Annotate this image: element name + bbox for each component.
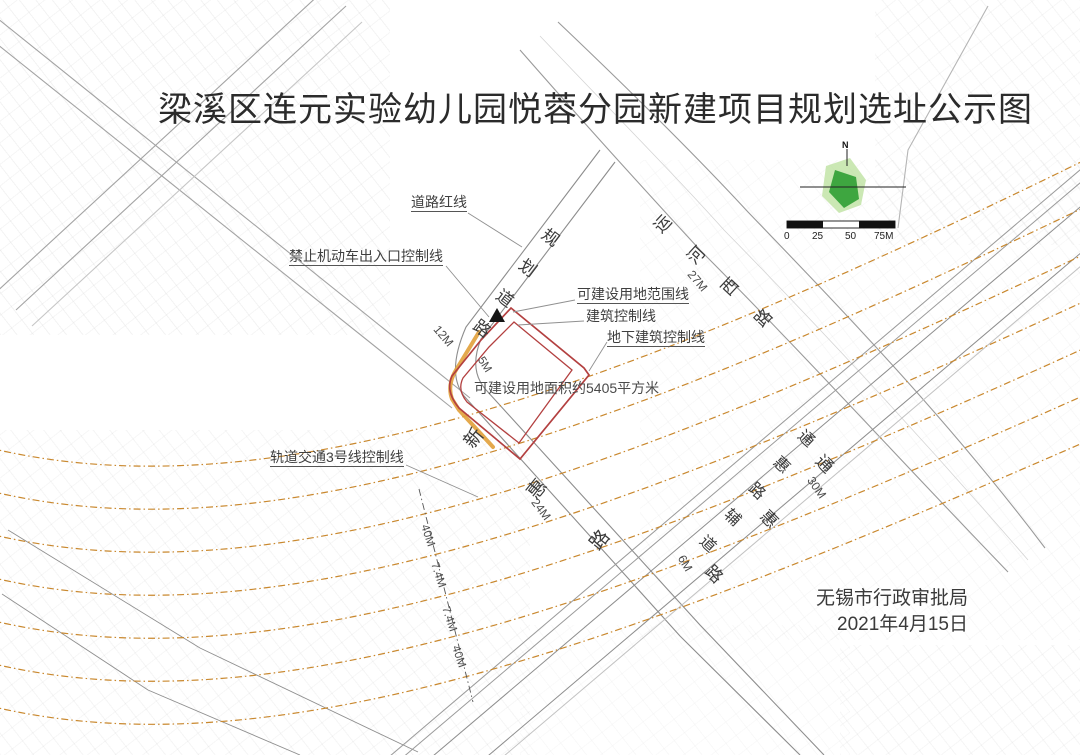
north-label: N [842, 140, 849, 150]
label-metro-line3-control: 轨道交通3号线控制线 [270, 449, 404, 467]
label-no-motor-entrance: 禁止机动车出入口控制线 [289, 248, 443, 266]
label-road-red-line: 道路红线 [411, 194, 467, 212]
label-buildable-area: 可建设用地面积约5405平方米 [474, 380, 659, 396]
north-arrow-icon [800, 149, 906, 213]
metro-dimension-line [419, 489, 473, 702]
label-underground-building-control: 地下建筑控制线 [607, 329, 705, 347]
footer-date: 2021年4月15日 [786, 609, 968, 636]
planning-site-selection-map: 梁溪区连元实验幼儿园悦蓉分园新建项目规划选址公示图 道路红线 禁止机动车出入口控… [0, 0, 1080, 755]
map-title: 梁溪区连元实验幼儿园悦蓉分园新建项目规划选址公示图 [158, 82, 1033, 131]
label-buildable-range: 可建设用地范围线 [577, 286, 689, 304]
tonghui-road-lines [217, 113, 1080, 755]
footer-agency: 无锡市行政审批局 [786, 583, 968, 610]
scale-tick-0: 0 [784, 231, 790, 242]
scale-tick-75m: 75M [874, 231, 893, 242]
label-building-control: 建筑控制线 [586, 308, 656, 324]
scale-bar-icon [787, 221, 895, 228]
scale-tick-50: 50 [845, 231, 856, 242]
scale-tick-25: 25 [812, 231, 823, 242]
